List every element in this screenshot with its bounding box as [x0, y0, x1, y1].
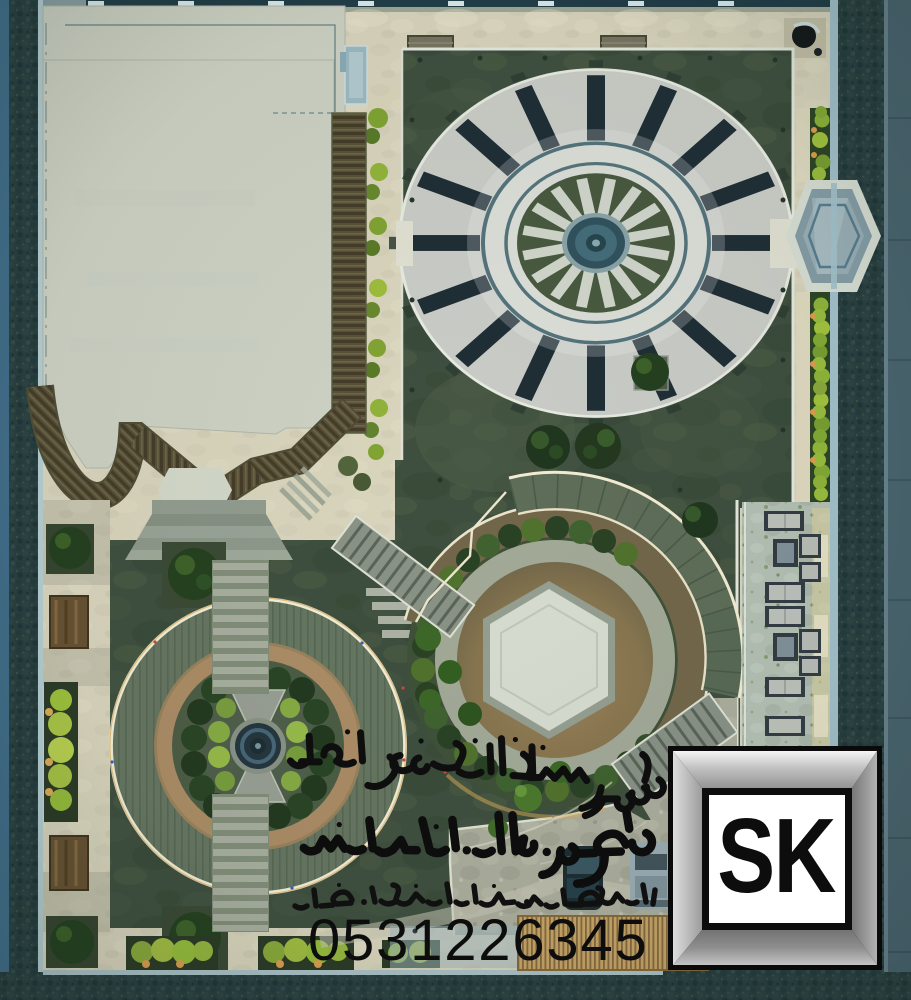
svg-text:0531226345: 0531226345	[308, 908, 649, 973]
svg-text:SK: SK	[717, 796, 836, 915]
